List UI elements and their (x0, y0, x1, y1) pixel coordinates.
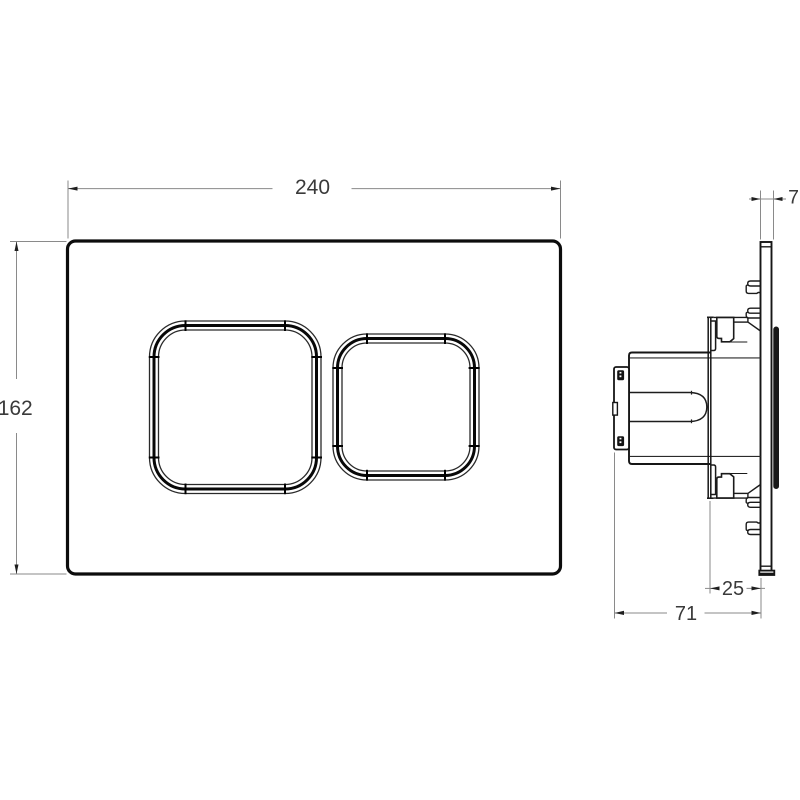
svg-text:240: 240 (295, 176, 330, 199)
svg-text:7: 7 (788, 187, 799, 209)
svg-text:162: 162 (0, 397, 33, 420)
svg-text:71: 71 (675, 603, 697, 625)
svg-text:25: 25 (722, 578, 744, 600)
